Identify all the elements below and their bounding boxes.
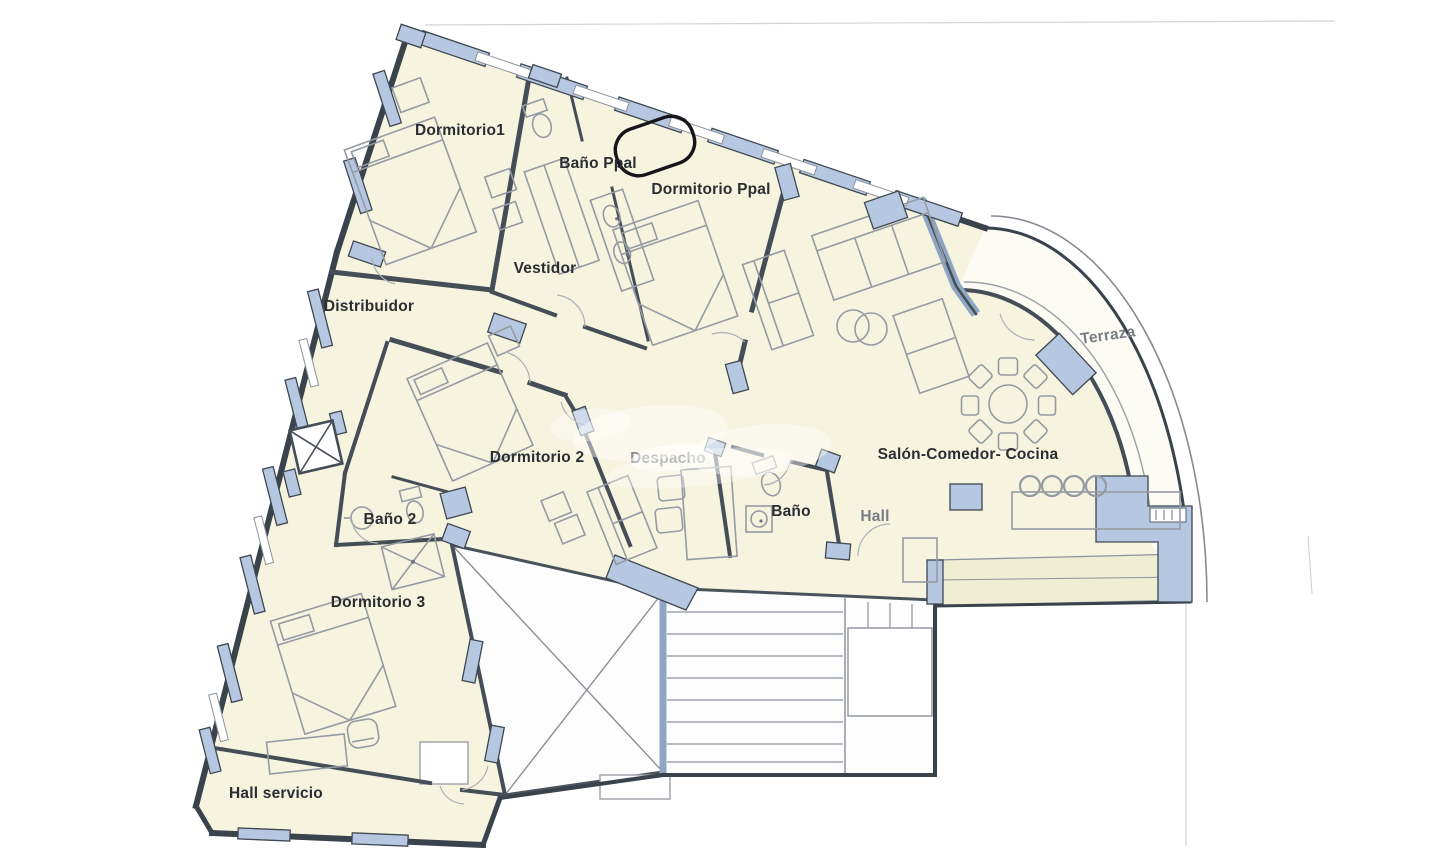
lower-balcony-band <box>938 554 1188 606</box>
room-label-hall: Hall <box>860 508 889 525</box>
room-label-vestidor: Vestidor <box>514 260 577 277</box>
elevator-shaft-icon <box>290 421 343 474</box>
room-label-dormitorio-ppal: Dormitorio Ppal <box>651 181 770 198</box>
room-label-bano: Baño <box>771 503 811 520</box>
room-label-bano-ppal: Baño Ppal <box>559 155 637 172</box>
room-label-dormitorio-3: Dormitorio 3 <box>331 594 426 611</box>
room-label-salon-comedor-cocina: Salón-Comedor- Cocina <box>878 446 1059 463</box>
service-stair <box>420 742 468 784</box>
floor-plan: Dormitorio1 Baño Ppal Dormitorio Ppal Ve… <box>0 0 1440 848</box>
room-label-bano-2: Baño 2 <box>364 511 417 528</box>
room-label-hall-servicio: Hall servicio <box>229 785 323 802</box>
scanned-floor-plan-document: Dormitorio1 Baño Ppal Dormitorio Ppal Ve… <box>0 0 1440 848</box>
room-label-distribuidor: Distribuidor <box>324 298 414 315</box>
room-label-dormitorio-1: Dormitorio1 <box>415 122 505 139</box>
kitchen-island-blue <box>950 484 982 510</box>
room-label-dormitorio-2: Dormitorio 2 <box>490 449 585 466</box>
